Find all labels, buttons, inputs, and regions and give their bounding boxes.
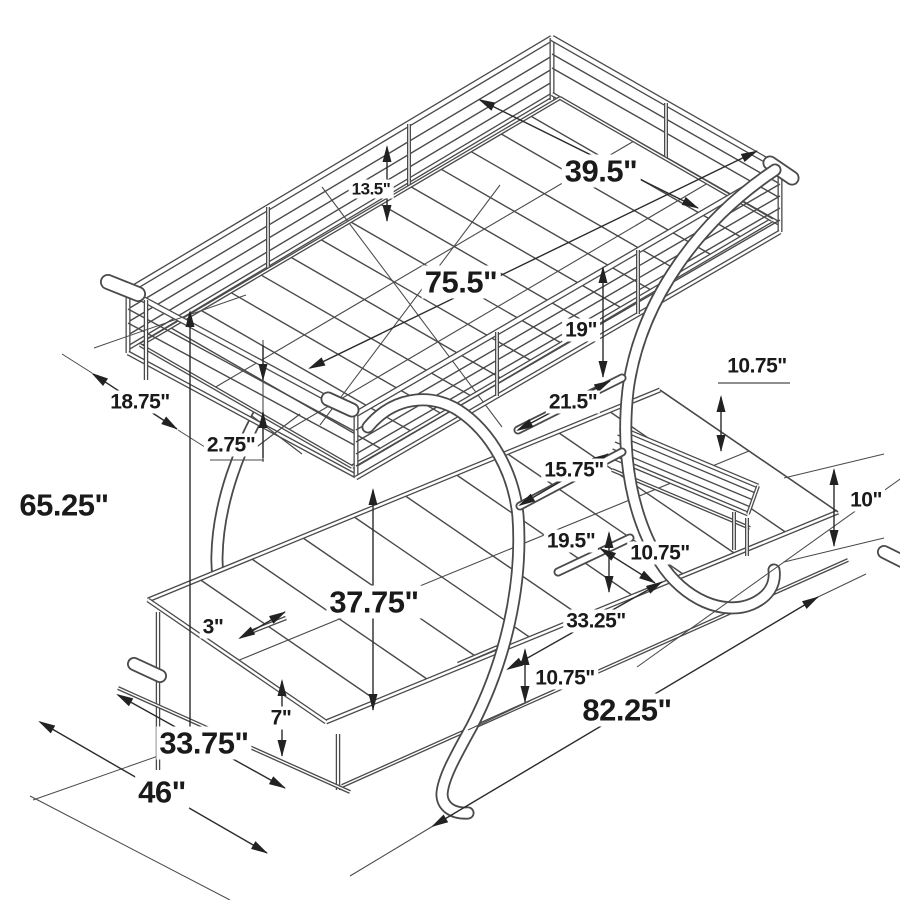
dim-overall-width-label: 46" [135,776,189,809]
dim-bracket-length-label: 3" [200,616,227,639]
dim-overall-length-label: 82.25" [579,694,674,727]
bed-line-drawing [0,0,900,900]
dim-futon-width-label: 33.25" [563,610,629,633]
dim-bunk-width-label: 39.5" [562,155,641,188]
dim-step-offset-label: 10.75" [627,542,693,565]
dim-futon-frame-height-label: 7" [268,707,295,730]
dim-futon-section-length-label: 33.75" [156,727,251,760]
dim-under-bunk-clearance-label: 37.75" [326,586,421,619]
dim-bunk-length-label: 75.5" [422,266,501,299]
dim-middle-shelf-length-label: 15.75" [541,459,607,482]
dim-floor-offset-label: 10.75" [532,667,598,690]
dim-foot-clearance-label: 18.75" [107,391,173,414]
dim-shelf-drop-label: 10.75" [724,355,790,378]
dim-rail-gap-label: 2.75" [204,434,258,457]
dim-bench-height-label: 10" [847,489,885,512]
dim-rail-to-shelf-gap-label: 19" [562,319,600,342]
dim-guard-rail-height-label: 13.5" [349,180,394,199]
dim-overall-height-label: 65.25" [16,489,111,522]
dim-shelf-spacing-label: 19.5" [544,530,598,553]
dim-upper-shelf-length-label: 21.5" [546,391,600,414]
diagram-canvas: 13.5" 39.5" 75.5" 19" 18.75" 2.75" 21.5"… [0,0,900,900]
